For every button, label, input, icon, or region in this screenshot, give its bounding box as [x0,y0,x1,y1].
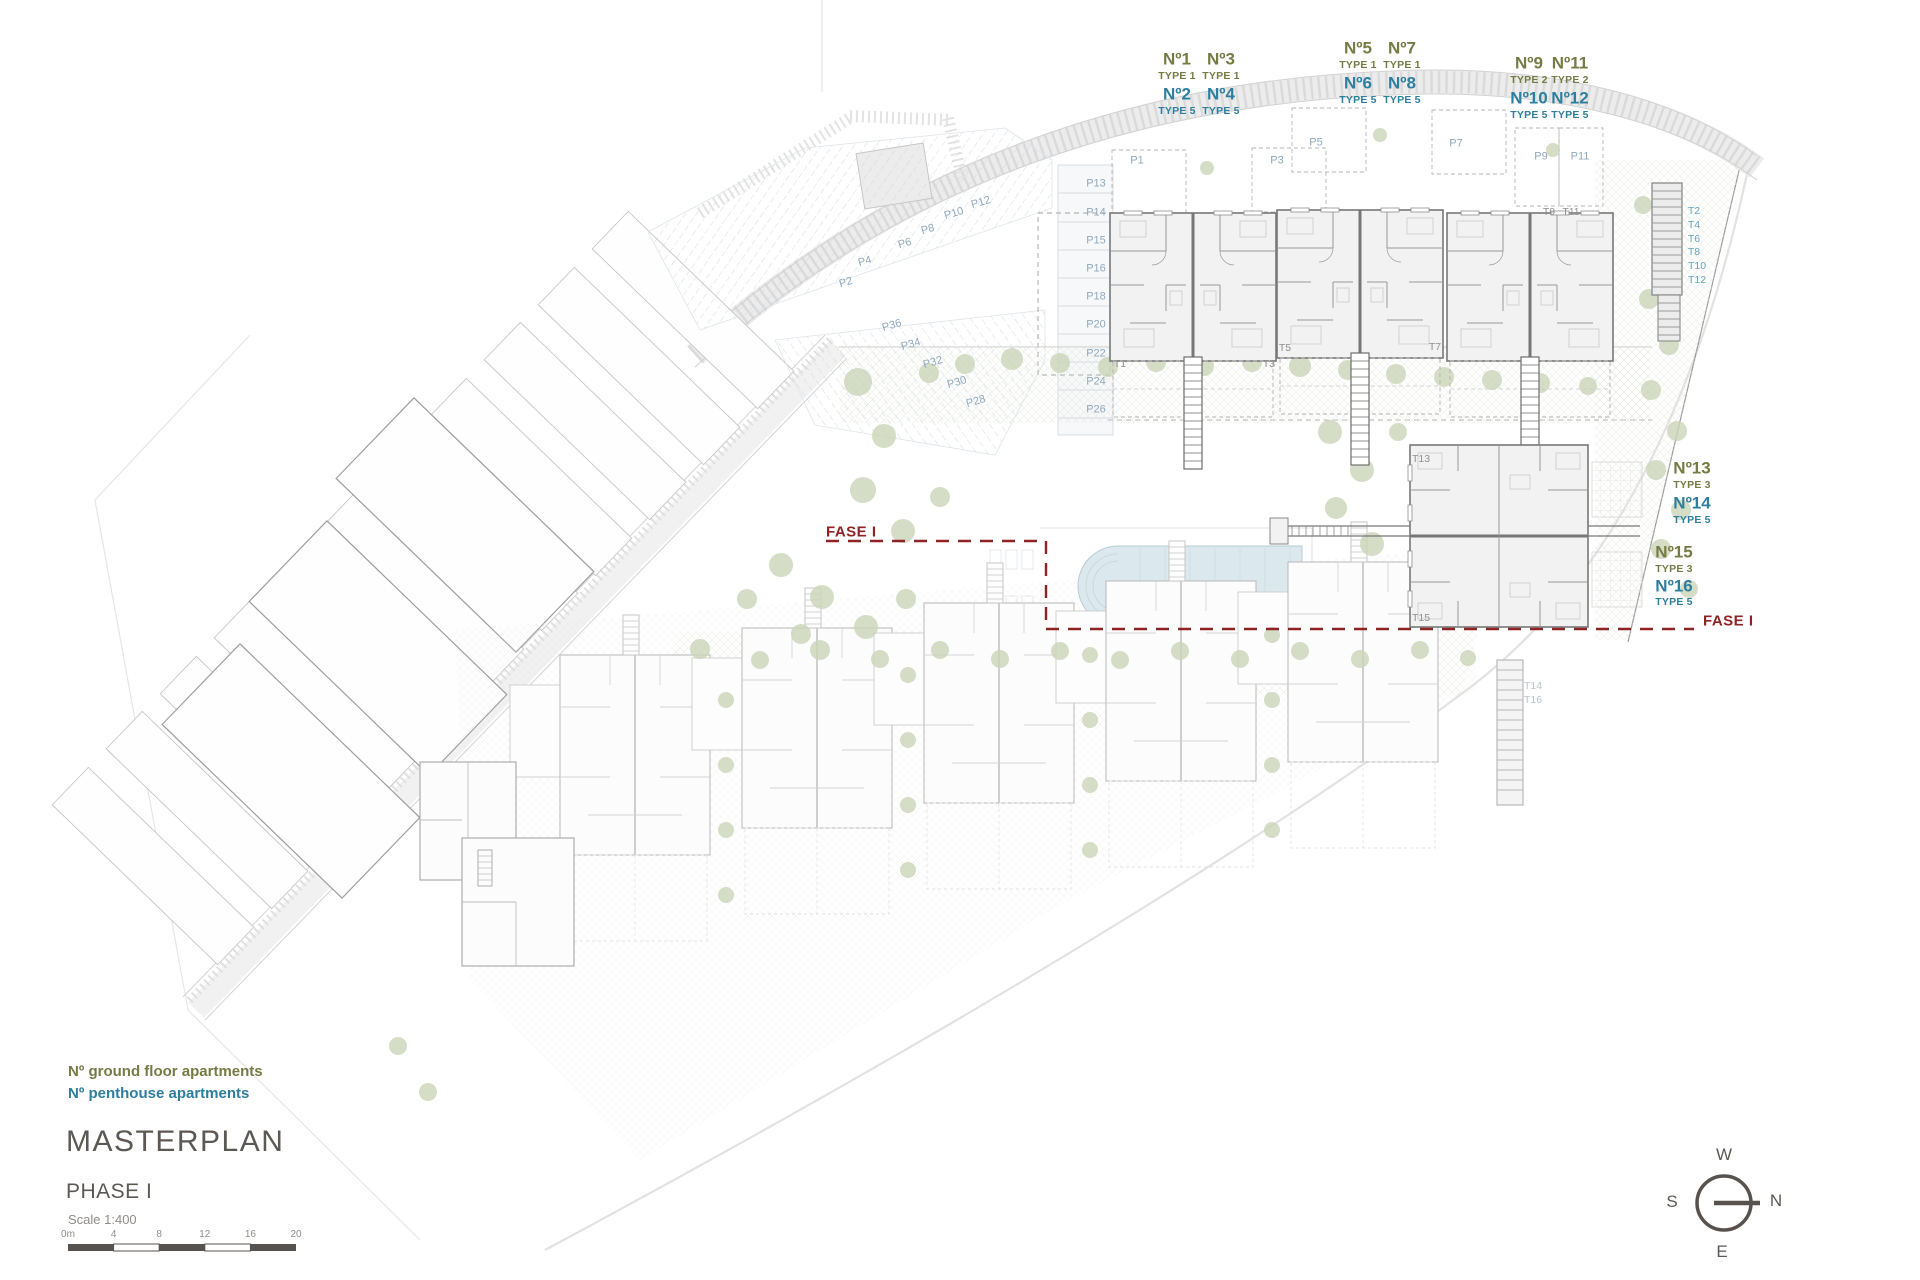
page-title: MASTERPLAN [66,1125,284,1159]
apartment-label: TYPE 1 [1339,60,1376,71]
apartment-label: TYPE 5 [1202,106,1239,117]
parking-label: P22 [1086,349,1106,360]
apartment-label: Nº15 [1655,544,1692,561]
unit-label: T8 [1688,247,1700,258]
unit-label: T1 [1114,359,1126,370]
parking-label: P26 [1086,405,1106,416]
apartment-label: Nº7 [1388,40,1416,57]
unit-label: T3 [1263,359,1275,370]
scale-tick: 8 [156,1229,162,1240]
compass-icon [1697,1176,1760,1230]
parking-label: P14 [1086,208,1106,219]
apartment-label: TYPE 1 [1202,71,1239,82]
unit-label: T13 [1412,454,1430,465]
apartment-label: Nº3 [1207,51,1235,68]
apartment-label: TYPE 5 [1158,106,1195,117]
unit-label: T6 [1688,234,1700,245]
unit-label: T12 [1688,275,1706,286]
apartment-label: TYPE 5 [1339,95,1376,106]
scale-tick: 20 [290,1229,301,1240]
apartment-label: TYPE 5 [1510,110,1547,121]
apartment-label: Nº8 [1388,75,1416,92]
apartment-label: Nº14 [1673,495,1710,512]
unit-label: T7 [1429,342,1441,353]
compass-letter-left: S [1666,1192,1677,1212]
scale-tick: 16 [245,1229,256,1240]
scale-tick: 0m [61,1229,75,1240]
compass-letter-bottom: E [1716,1242,1727,1262]
scale-tick: 4 [111,1229,117,1240]
unit-label: T11 [1562,207,1579,218]
unit-label: T16 [1524,695,1542,706]
unit-label: T9 [1543,207,1555,218]
parking-label: P24 [1086,377,1106,388]
unit-label: T2 [1688,206,1700,217]
phase-boundary-label-left: FASE I [826,524,877,541]
parking-label: P11 [1571,152,1590,163]
unit-label: T14 [1524,681,1542,692]
apartment-label: Nº16 [1655,578,1692,595]
apartment-label: Nº12 [1551,90,1588,107]
parking-label: P18 [1086,292,1106,303]
apartment-label: Nº5 [1344,40,1372,57]
apartment-label: TYPE 5 [1383,95,1420,106]
apartment-label: Nº11 [1552,55,1588,72]
apartment-label: TYPE 5 [1655,597,1692,608]
apartment-label: Nº6 [1344,75,1372,92]
apartment-label: Nº2 [1163,86,1191,103]
apartment-label: TYPE 3 [1655,564,1692,575]
compass-letter-right: N [1770,1191,1782,1211]
unit-label: T15 [1412,613,1430,624]
apartment-label: TYPE 2 [1551,75,1588,86]
apartment-label: TYPE 1 [1383,60,1420,71]
scale-caption: Scale 1:400 [68,1212,137,1227]
scale-tick: 12 [199,1229,210,1240]
parking-label: P16 [1086,264,1106,275]
phase1-buildings [1110,208,1613,469]
apartment-label: TYPE 2 [1510,75,1547,86]
apartment-label: TYPE 5 [1551,110,1588,121]
parking-label: P20 [1086,320,1106,331]
parking-label: P1 [1130,156,1143,167]
apartment-label: Nº13 [1673,460,1710,477]
apartment-label: Nº9 [1515,55,1543,72]
parking-label: P5 [1309,138,1322,149]
legend-ground-floor: Nº ground floor apartments [68,1063,263,1080]
apartment-label: TYPE 5 [1673,515,1710,526]
apartment-label: Nº10 [1510,90,1547,107]
site-plan-drawing [0,0,1920,1280]
compass-letter-top: W [1716,1145,1732,1165]
legend-penthouse: Nº penthouse apartments [68,1085,249,1102]
apartment-label: TYPE 1 [1158,71,1195,82]
parking-label: P15 [1086,236,1106,247]
apartment-label: TYPE 3 [1673,480,1710,491]
phase-subtitle: PHASE I [66,1180,152,1204]
masterplan-page: Nº1Nº3TYPE 1TYPE 1Nº2Nº4TYPE 5TYPE 5Nº5N… [0,0,1920,1280]
parking-label: P9 [1534,152,1547,163]
parking-label: P13 [1086,179,1106,190]
unit-label: T5 [1279,343,1291,354]
apartment-label: Nº4 [1207,86,1235,103]
unit-label: T4 [1688,220,1700,231]
apartment-label: Nº1 [1163,51,1191,68]
parking-label: P3 [1270,156,1283,167]
unit-label: T10 [1688,261,1706,272]
scale-bar [68,1244,296,1251]
phase-boundary-label-right: FASE I [1703,613,1754,630]
parking-label: P7 [1449,139,1462,150]
